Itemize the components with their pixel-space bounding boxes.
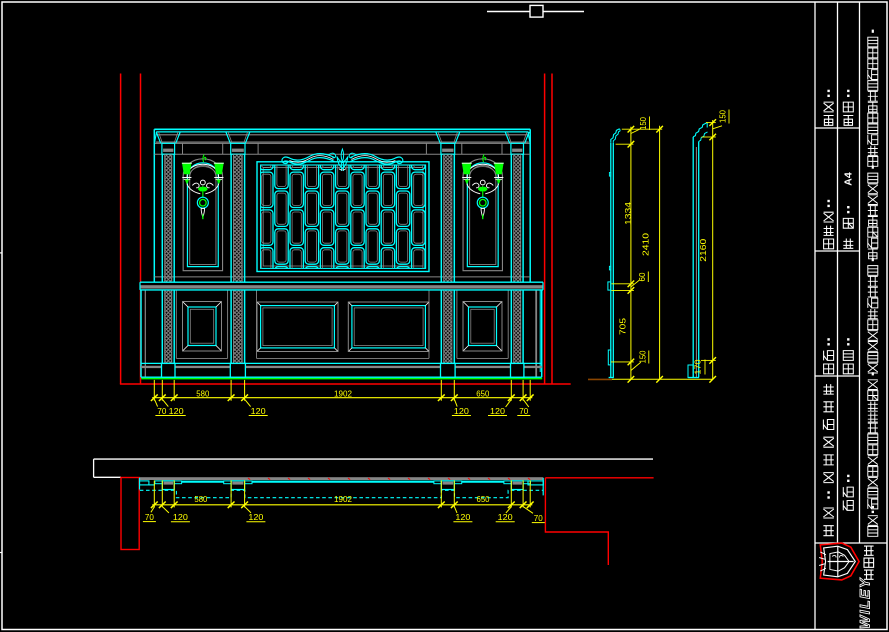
svg-text:150: 150 bbox=[638, 117, 648, 130]
svg-text:2410: 2410 bbox=[641, 233, 651, 256]
svg-text:170: 170 bbox=[693, 359, 703, 374]
svg-text:60: 60 bbox=[637, 272, 647, 281]
svg-text:70: 70 bbox=[157, 406, 166, 416]
svg-text:650: 650 bbox=[476, 388, 489, 398]
svg-text:705: 705 bbox=[618, 318, 628, 335]
svg-text:580: 580 bbox=[194, 494, 207, 504]
svg-text:120: 120 bbox=[498, 512, 513, 522]
svg-text:120: 120 bbox=[173, 512, 188, 522]
svg-text:A4: A4 bbox=[842, 172, 854, 186]
svg-text:70: 70 bbox=[519, 406, 528, 416]
svg-text:120: 120 bbox=[490, 406, 505, 416]
svg-text:70: 70 bbox=[534, 513, 543, 523]
svg-text:70: 70 bbox=[145, 512, 154, 522]
svg-text:120: 120 bbox=[455, 512, 470, 522]
svg-text:WILEY: WILEY bbox=[857, 577, 873, 629]
svg-text:120: 120 bbox=[454, 406, 469, 416]
svg-text:150: 150 bbox=[718, 110, 728, 123]
svg-text:1334: 1334 bbox=[623, 202, 633, 225]
svg-text:120: 120 bbox=[169, 406, 184, 416]
svg-text:1902: 1902 bbox=[334, 388, 352, 398]
svg-text:150: 150 bbox=[637, 350, 647, 363]
svg-text:1902: 1902 bbox=[334, 494, 352, 504]
svg-text:650: 650 bbox=[477, 494, 490, 504]
svg-text:120: 120 bbox=[248, 512, 263, 522]
svg-text:580: 580 bbox=[196, 388, 209, 398]
svg-text:2160: 2160 bbox=[698, 239, 708, 262]
svg-text:120: 120 bbox=[251, 406, 266, 416]
